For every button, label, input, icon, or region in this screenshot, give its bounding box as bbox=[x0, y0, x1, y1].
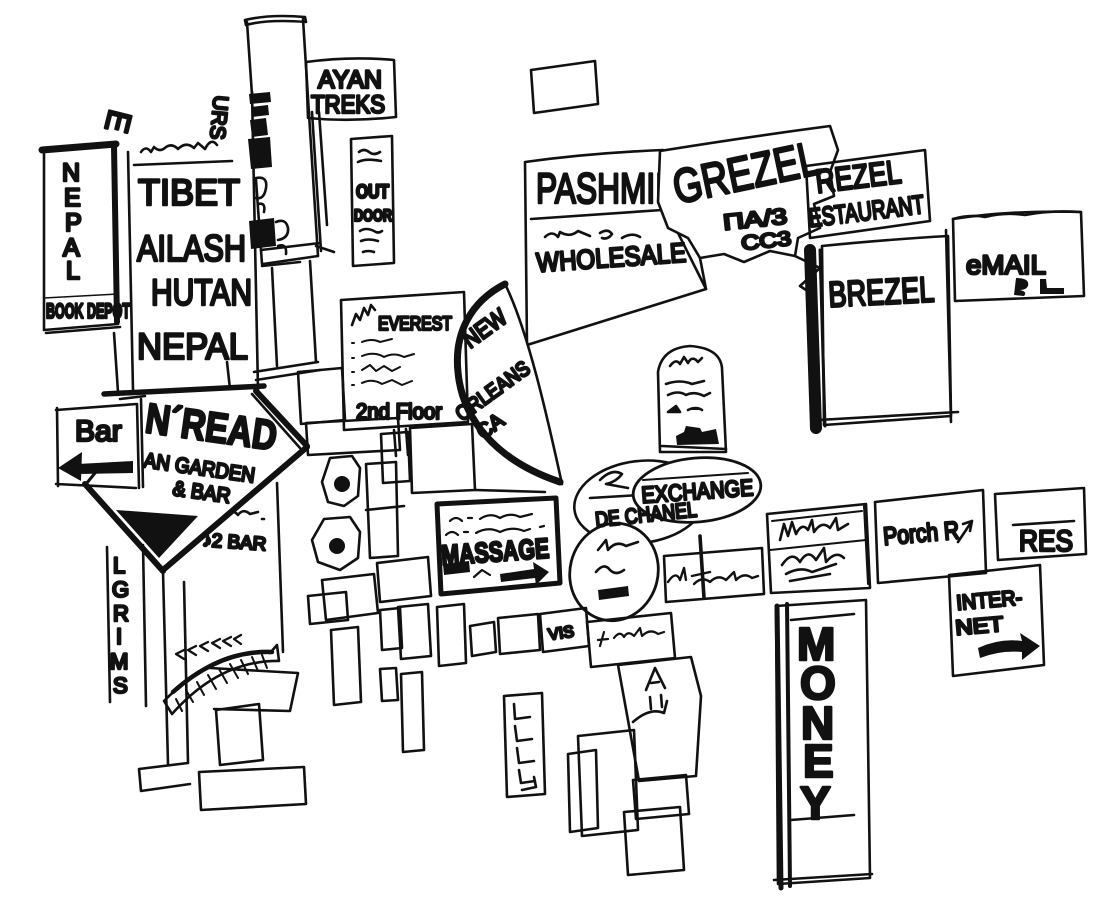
svg-text:R: R bbox=[113, 601, 129, 626]
svg-text:BREZEL: BREZEL bbox=[827, 268, 935, 314]
svg-text:HUTAN: HUTAN bbox=[151, 272, 252, 313]
svg-text:G: G bbox=[112, 577, 129, 602]
svg-text:Y: Y bbox=[800, 777, 831, 829]
svg-text:M: M bbox=[110, 649, 128, 674]
svg-text:PASHMII: PASHMII bbox=[536, 165, 664, 213]
svg-text:AYAN: AYAN bbox=[318, 66, 382, 94]
svg-text:eMAIL: eMAIL bbox=[966, 250, 1046, 280]
svg-text:Bar: Bar bbox=[75, 415, 122, 448]
svg-text:L: L bbox=[66, 257, 80, 285]
svg-text:VIS: VIS bbox=[547, 624, 575, 644]
svg-text:I: I bbox=[116, 624, 122, 649]
svg-text:N: N bbox=[62, 159, 80, 187]
svg-text:NEPAL: NEPAL bbox=[137, 326, 248, 367]
svg-text:S: S bbox=[113, 673, 128, 698]
svg-text:L: L bbox=[113, 553, 125, 578]
svg-text:NET: NET bbox=[954, 613, 1004, 640]
svg-text:URS: URS bbox=[205, 95, 232, 141]
svg-text:BOOK DEPOT: BOOK DEPOT bbox=[46, 300, 130, 323]
svg-text:E: E bbox=[64, 184, 81, 212]
svg-text:TREKS: TREKS bbox=[311, 91, 385, 119]
svg-text:P: P bbox=[65, 209, 82, 237]
svg-text:DOOR: DOOR bbox=[354, 206, 392, 225]
svg-text:RES: RES bbox=[1019, 525, 1073, 558]
svg-text:♪2 BAR: ♪2 BAR bbox=[202, 530, 267, 555]
svg-text:OUT: OUT bbox=[356, 182, 389, 203]
svg-text:EVEREST: EVEREST bbox=[378, 314, 452, 335]
svg-text:TIBET: TIBET bbox=[138, 172, 240, 213]
svg-text:AILASH: AILASH bbox=[137, 228, 246, 269]
